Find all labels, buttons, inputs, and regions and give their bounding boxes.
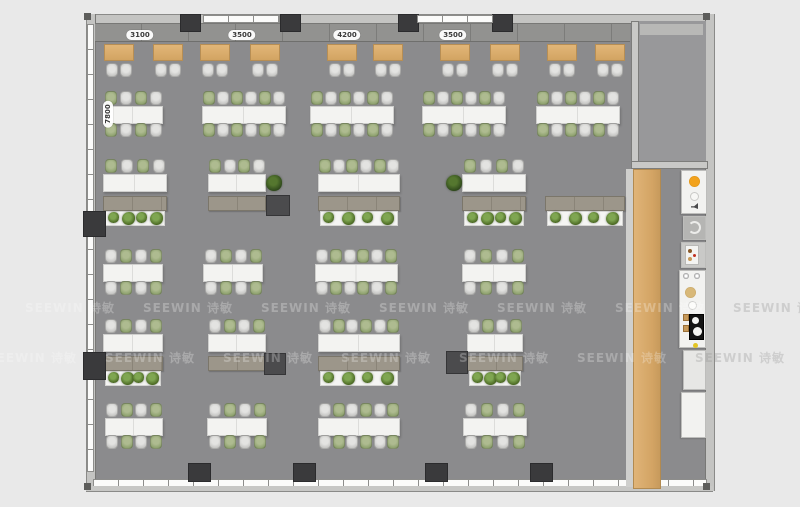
office-chair: [250, 249, 262, 263]
vent-fan-icon: [683, 273, 689, 279]
pantry-counter: [681, 392, 706, 438]
office-chair: [387, 403, 399, 417]
meeting-table: [318, 174, 400, 192]
office-chair: [319, 159, 331, 173]
office-chair: [238, 159, 250, 173]
office-chair: [150, 91, 162, 105]
office-chair: [346, 319, 358, 333]
storage-cabinet: [462, 196, 526, 211]
office-chair: [512, 281, 524, 295]
office-chair: [135, 91, 147, 105]
meeting-table: [462, 174, 526, 192]
floor-plant: [446, 175, 462, 191]
office-chair: [513, 435, 525, 449]
plant: [588, 212, 599, 223]
burner-orange-icon: [689, 176, 700, 187]
plant: [550, 212, 561, 223]
plant: [467, 212, 478, 223]
office-chair: [239, 403, 251, 417]
office-chair: [513, 403, 525, 417]
office-chair: [216, 63, 228, 77]
office-chair: [105, 319, 117, 333]
office-chair: [607, 123, 619, 137]
corner-post: [703, 483, 710, 490]
office-chair: [437, 123, 449, 137]
storage-cube: [266, 195, 290, 216]
office-chair: [464, 281, 476, 295]
meeting-table: [103, 174, 167, 192]
office-chair: [464, 159, 476, 173]
office-chair: [135, 435, 147, 449]
office-chair: [121, 403, 133, 417]
office-chair: [217, 91, 229, 105]
office-chair: [468, 319, 480, 333]
office-chair: [254, 403, 266, 417]
office-chair: [316, 249, 328, 263]
corner-post: [84, 13, 91, 20]
office-chair: [437, 91, 449, 105]
plant: [362, 372, 373, 383]
office-chair: [357, 249, 369, 263]
meeting-table: [310, 106, 394, 124]
office-chair: [465, 91, 477, 105]
office-chair: [137, 159, 149, 173]
office-chair: [374, 435, 386, 449]
office-chair: [385, 281, 397, 295]
watermark: SEEWIN 诗敏: [261, 299, 351, 316]
training-desk: [595, 44, 625, 61]
office-chair: [169, 63, 181, 77]
office-chair: [239, 435, 251, 449]
corridor-divider: [626, 169, 633, 487]
office-chair: [465, 403, 477, 417]
machine-dot-tan: [688, 257, 692, 261]
structural-column: [280, 14, 301, 32]
office-chair: [423, 123, 435, 137]
watermark: SEEWIN 诗敏: [379, 299, 469, 316]
office-chair: [273, 123, 285, 137]
meeting-table: [105, 418, 163, 436]
office-chair: [135, 123, 147, 137]
dimension-label-vertical: 7800: [103, 100, 113, 127]
office-chair: [245, 91, 257, 105]
office-chair: [451, 91, 463, 105]
dimension-label: 3100: [126, 30, 153, 40]
office-chair: [551, 91, 563, 105]
office-chair: [220, 249, 232, 263]
structural-column: [530, 463, 553, 482]
plant: [472, 372, 483, 383]
office-chair: [150, 123, 162, 137]
office-chair: [375, 63, 387, 77]
office-chair: [344, 281, 356, 295]
office-chair: [496, 319, 508, 333]
office-chair: [497, 435, 509, 449]
training-desk: [547, 44, 577, 61]
plant: [381, 372, 394, 385]
office-chair: [155, 63, 167, 77]
office-chair: [496, 159, 508, 173]
office-chair: [481, 435, 493, 449]
office-chair: [367, 123, 379, 137]
office-chair: [120, 319, 132, 333]
corner-post: [703, 13, 710, 20]
plant: [495, 372, 506, 383]
machine-body: [685, 245, 699, 265]
structural-column: [425, 463, 448, 482]
office-chair: [319, 319, 331, 333]
meeting-table: [103, 264, 163, 282]
structural-column: [83, 352, 106, 380]
training-desk: [327, 44, 357, 61]
training-desk: [200, 44, 230, 61]
office-chair: [346, 159, 358, 173]
watermark: SEEWIN 诗敏: [615, 299, 705, 316]
plant: [507, 372, 520, 385]
structural-column: [180, 14, 201, 32]
meeting-room-counter: [640, 24, 703, 35]
plant: [509, 212, 522, 225]
office-chair: [235, 281, 247, 295]
office-chair: [333, 403, 345, 417]
office-chair: [607, 91, 619, 105]
plant: [146, 372, 159, 385]
wood-floor-strip: [633, 169, 661, 489]
office-chair: [330, 281, 342, 295]
office-chair: [106, 403, 118, 417]
burner-icon: [693, 327, 702, 336]
window-strip-left: [87, 24, 94, 472]
meeting-table: [463, 418, 527, 436]
training-desk: [490, 44, 520, 61]
office-chair: [150, 249, 162, 263]
office-chair: [492, 63, 504, 77]
dimension-label: 3500: [228, 30, 255, 40]
office-chair: [259, 91, 271, 105]
office-chair: [120, 123, 132, 137]
plant: [108, 372, 119, 383]
office-chair: [253, 319, 265, 333]
office-chair: [346, 435, 358, 449]
office-chair: [254, 435, 266, 449]
meeting-table: [208, 174, 266, 192]
office-chair: [224, 403, 236, 417]
office-chair: [325, 123, 337, 137]
office-chair: [381, 123, 393, 137]
office-chair: [493, 123, 505, 137]
office-chair: [506, 63, 518, 77]
office-chair: [385, 249, 397, 263]
office-chair: [512, 249, 524, 263]
office-chair: [551, 123, 563, 137]
office-chair: [325, 91, 337, 105]
office-chair: [357, 281, 369, 295]
corner-post: [84, 483, 91, 490]
office-chair: [220, 281, 232, 295]
plant: [122, 212, 135, 225]
office-chair: [150, 435, 162, 449]
office-chair: [579, 91, 591, 105]
office-chair: [135, 319, 147, 333]
office-chair: [482, 319, 494, 333]
office-chair: [479, 123, 491, 137]
ring-icon: [690, 192, 699, 201]
meeting-table: [207, 418, 267, 436]
office-chair: [593, 123, 605, 137]
watermark: SEEWIN 诗敏: [733, 299, 800, 316]
plant: [495, 212, 506, 223]
machine-dot-red: [693, 254, 696, 257]
office-chair: [209, 319, 221, 333]
office-chair: [273, 91, 285, 105]
window-strip-top: [203, 15, 280, 23]
office-chair: [250, 281, 262, 295]
office-chair: [135, 403, 147, 417]
office-chair: [565, 91, 577, 105]
office-chair: [387, 435, 399, 449]
storage-cabinet: [208, 196, 266, 211]
structural-column: [188, 463, 211, 482]
office-chair: [266, 63, 278, 77]
watermark: SEEWIN 诗敏: [341, 349, 431, 366]
office-chair: [360, 319, 372, 333]
office-chair: [387, 159, 399, 173]
training-desk: [153, 44, 183, 61]
office-chair: [389, 63, 401, 77]
office-chair: [374, 403, 386, 417]
watermark: SEEWIN 诗敏: [695, 349, 785, 366]
office-chair: [330, 249, 342, 263]
office-chair: [465, 123, 477, 137]
meeting-room-wall: [631, 21, 639, 169]
office-chair: [480, 249, 492, 263]
wall-right: [705, 14, 715, 491]
office-chair: [203, 91, 215, 105]
office-chair: [360, 403, 372, 417]
office-chair: [344, 249, 356, 263]
office-chair: [537, 91, 549, 105]
office-chair: [512, 159, 524, 173]
office-chair: [464, 249, 476, 263]
plant: [481, 212, 494, 225]
meeting-room-wall: [631, 161, 708, 169]
office-chair: [387, 319, 399, 333]
office-chair: [579, 123, 591, 137]
office-chair: [121, 435, 133, 449]
office-chair: [224, 435, 236, 449]
watermark: SEEWIN 诗敏: [0, 349, 77, 366]
structural-column: [293, 463, 316, 482]
office-chair: [121, 159, 133, 173]
office-chair: [481, 403, 493, 417]
office-chair: [224, 319, 236, 333]
office-chair: [423, 91, 435, 105]
office-chair: [205, 249, 217, 263]
wall-bottom: [86, 486, 713, 492]
office-chair: [374, 319, 386, 333]
window-strip-top: [417, 15, 493, 23]
office-chair: [360, 435, 372, 449]
plant: [108, 212, 119, 223]
machine-dot-brown: [688, 249, 692, 253]
office-chair: [339, 91, 351, 105]
meeting-room-floor: [637, 21, 706, 162]
office-chair: [480, 281, 492, 295]
meeting-table: [462, 264, 526, 282]
office-chair: [153, 159, 165, 173]
office-chair: [480, 159, 492, 173]
office-chair: [353, 91, 365, 105]
office-chair: [135, 281, 147, 295]
watermark: SEEWIN 诗敏: [105, 349, 195, 366]
structural-column: [492, 14, 513, 32]
office-chair: [120, 63, 132, 77]
training-desk: [440, 44, 470, 61]
office-chair: [597, 63, 609, 77]
bowl-tan-icon: [685, 287, 696, 298]
office-chair: [217, 123, 229, 137]
office-chair: [135, 249, 147, 263]
office-chair: [465, 435, 477, 449]
office-chair: [493, 91, 505, 105]
office-chair: [105, 281, 117, 295]
office-chair: [510, 319, 522, 333]
office-chair: [479, 91, 491, 105]
plant: [381, 212, 394, 225]
office-chair: [537, 123, 549, 137]
vent-fan-icon: [694, 273, 700, 279]
structural-column: [398, 14, 419, 32]
watermark: SEEWIN 诗敏: [25, 299, 115, 316]
office-chair: [235, 249, 247, 263]
office-chair: [319, 435, 331, 449]
office-chair: [496, 249, 508, 263]
office-chair: [203, 123, 215, 137]
office-chair: [120, 91, 132, 105]
sink-basin-icon: [688, 221, 701, 234]
office-chair: [150, 403, 162, 417]
office-chair: [381, 91, 393, 105]
office-chair: [202, 63, 214, 77]
office-chair: [593, 91, 605, 105]
office-chair: [371, 249, 383, 263]
plant: [323, 372, 334, 383]
office-floor: [93, 21, 706, 479]
watermark: SEEWIN 诗敏: [143, 299, 233, 316]
office-chair: [316, 281, 328, 295]
office-chair: [329, 63, 341, 77]
training-desk: [250, 44, 280, 61]
office-chair: [333, 435, 345, 449]
office-chair: [563, 63, 575, 77]
floor-plan-canvas: 31003500420035007800SEEWIN 诗敏SEEWIN 诗敏SE…: [0, 0, 800, 507]
training-desk: [373, 44, 403, 61]
office-chair: [259, 123, 271, 137]
plant: [362, 212, 373, 223]
meeting-table: [202, 106, 286, 124]
watermark: SEEWIN 诗敏: [459, 349, 549, 366]
office-chair: [333, 319, 345, 333]
watermark: SEEWIN 诗敏: [223, 349, 313, 366]
training-desk: [104, 44, 134, 61]
floor-plant: [266, 175, 282, 191]
office-chair: [319, 403, 331, 417]
watermark: SEEWIN 诗敏: [577, 349, 667, 366]
office-chair: [245, 123, 257, 137]
office-chair: [224, 159, 236, 173]
storage-cabinet: [103, 196, 167, 211]
office-chair: [205, 281, 217, 295]
office-chair: [150, 281, 162, 295]
office-chair: [346, 403, 358, 417]
office-chair: [209, 403, 221, 417]
office-chair: [371, 281, 383, 295]
meeting-table: [422, 106, 506, 124]
office-chair: [120, 249, 132, 263]
burner-icon: [692, 317, 699, 324]
meeting-table: [203, 264, 263, 282]
office-chair: [549, 63, 561, 77]
office-chair: [209, 435, 221, 449]
watermark: SEEWIN 诗敏: [497, 299, 587, 316]
office-chair: [360, 159, 372, 173]
office-chair: [105, 249, 117, 263]
office-chair: [456, 63, 468, 77]
meeting-table: [318, 418, 400, 436]
meeting-table: [536, 106, 620, 124]
office-chair: [496, 281, 508, 295]
storage-cabinet: [318, 196, 400, 211]
plant: [323, 212, 334, 223]
office-chair: [231, 123, 243, 137]
plant: [121, 372, 134, 385]
office-chair: [451, 123, 463, 137]
dimension-label: 4200: [333, 30, 360, 40]
office-chair: [150, 319, 162, 333]
office-chair: [252, 63, 264, 77]
office-chair: [105, 159, 117, 173]
meeting-table: [315, 264, 398, 282]
plant: [150, 212, 163, 225]
office-chair: [333, 159, 345, 173]
office-chair: [106, 63, 118, 77]
knob-yellow-icon: [693, 343, 698, 348]
office-chair: [339, 123, 351, 137]
office-chair: [343, 63, 355, 77]
office-chair: [253, 159, 265, 173]
office-chair: [311, 123, 323, 137]
office-chair: [442, 63, 454, 77]
office-chair: [311, 91, 323, 105]
office-chair: [367, 91, 379, 105]
plant: [569, 212, 582, 225]
storage-cabinet: [545, 196, 625, 211]
office-chair: [209, 159, 221, 173]
office-chair: [353, 123, 365, 137]
dimension-label: 3500: [439, 30, 466, 40]
office-chair: [565, 123, 577, 137]
office-chair: [106, 435, 118, 449]
office-chair: [374, 159, 386, 173]
office-chair: [231, 91, 243, 105]
structural-column: [83, 211, 106, 237]
plant: [136, 212, 147, 223]
locker-cabinet-band: [95, 24, 630, 42]
office-chair: [238, 319, 250, 333]
office-chair: [120, 281, 132, 295]
office-chair: [497, 403, 509, 417]
office-chair: [611, 63, 623, 77]
